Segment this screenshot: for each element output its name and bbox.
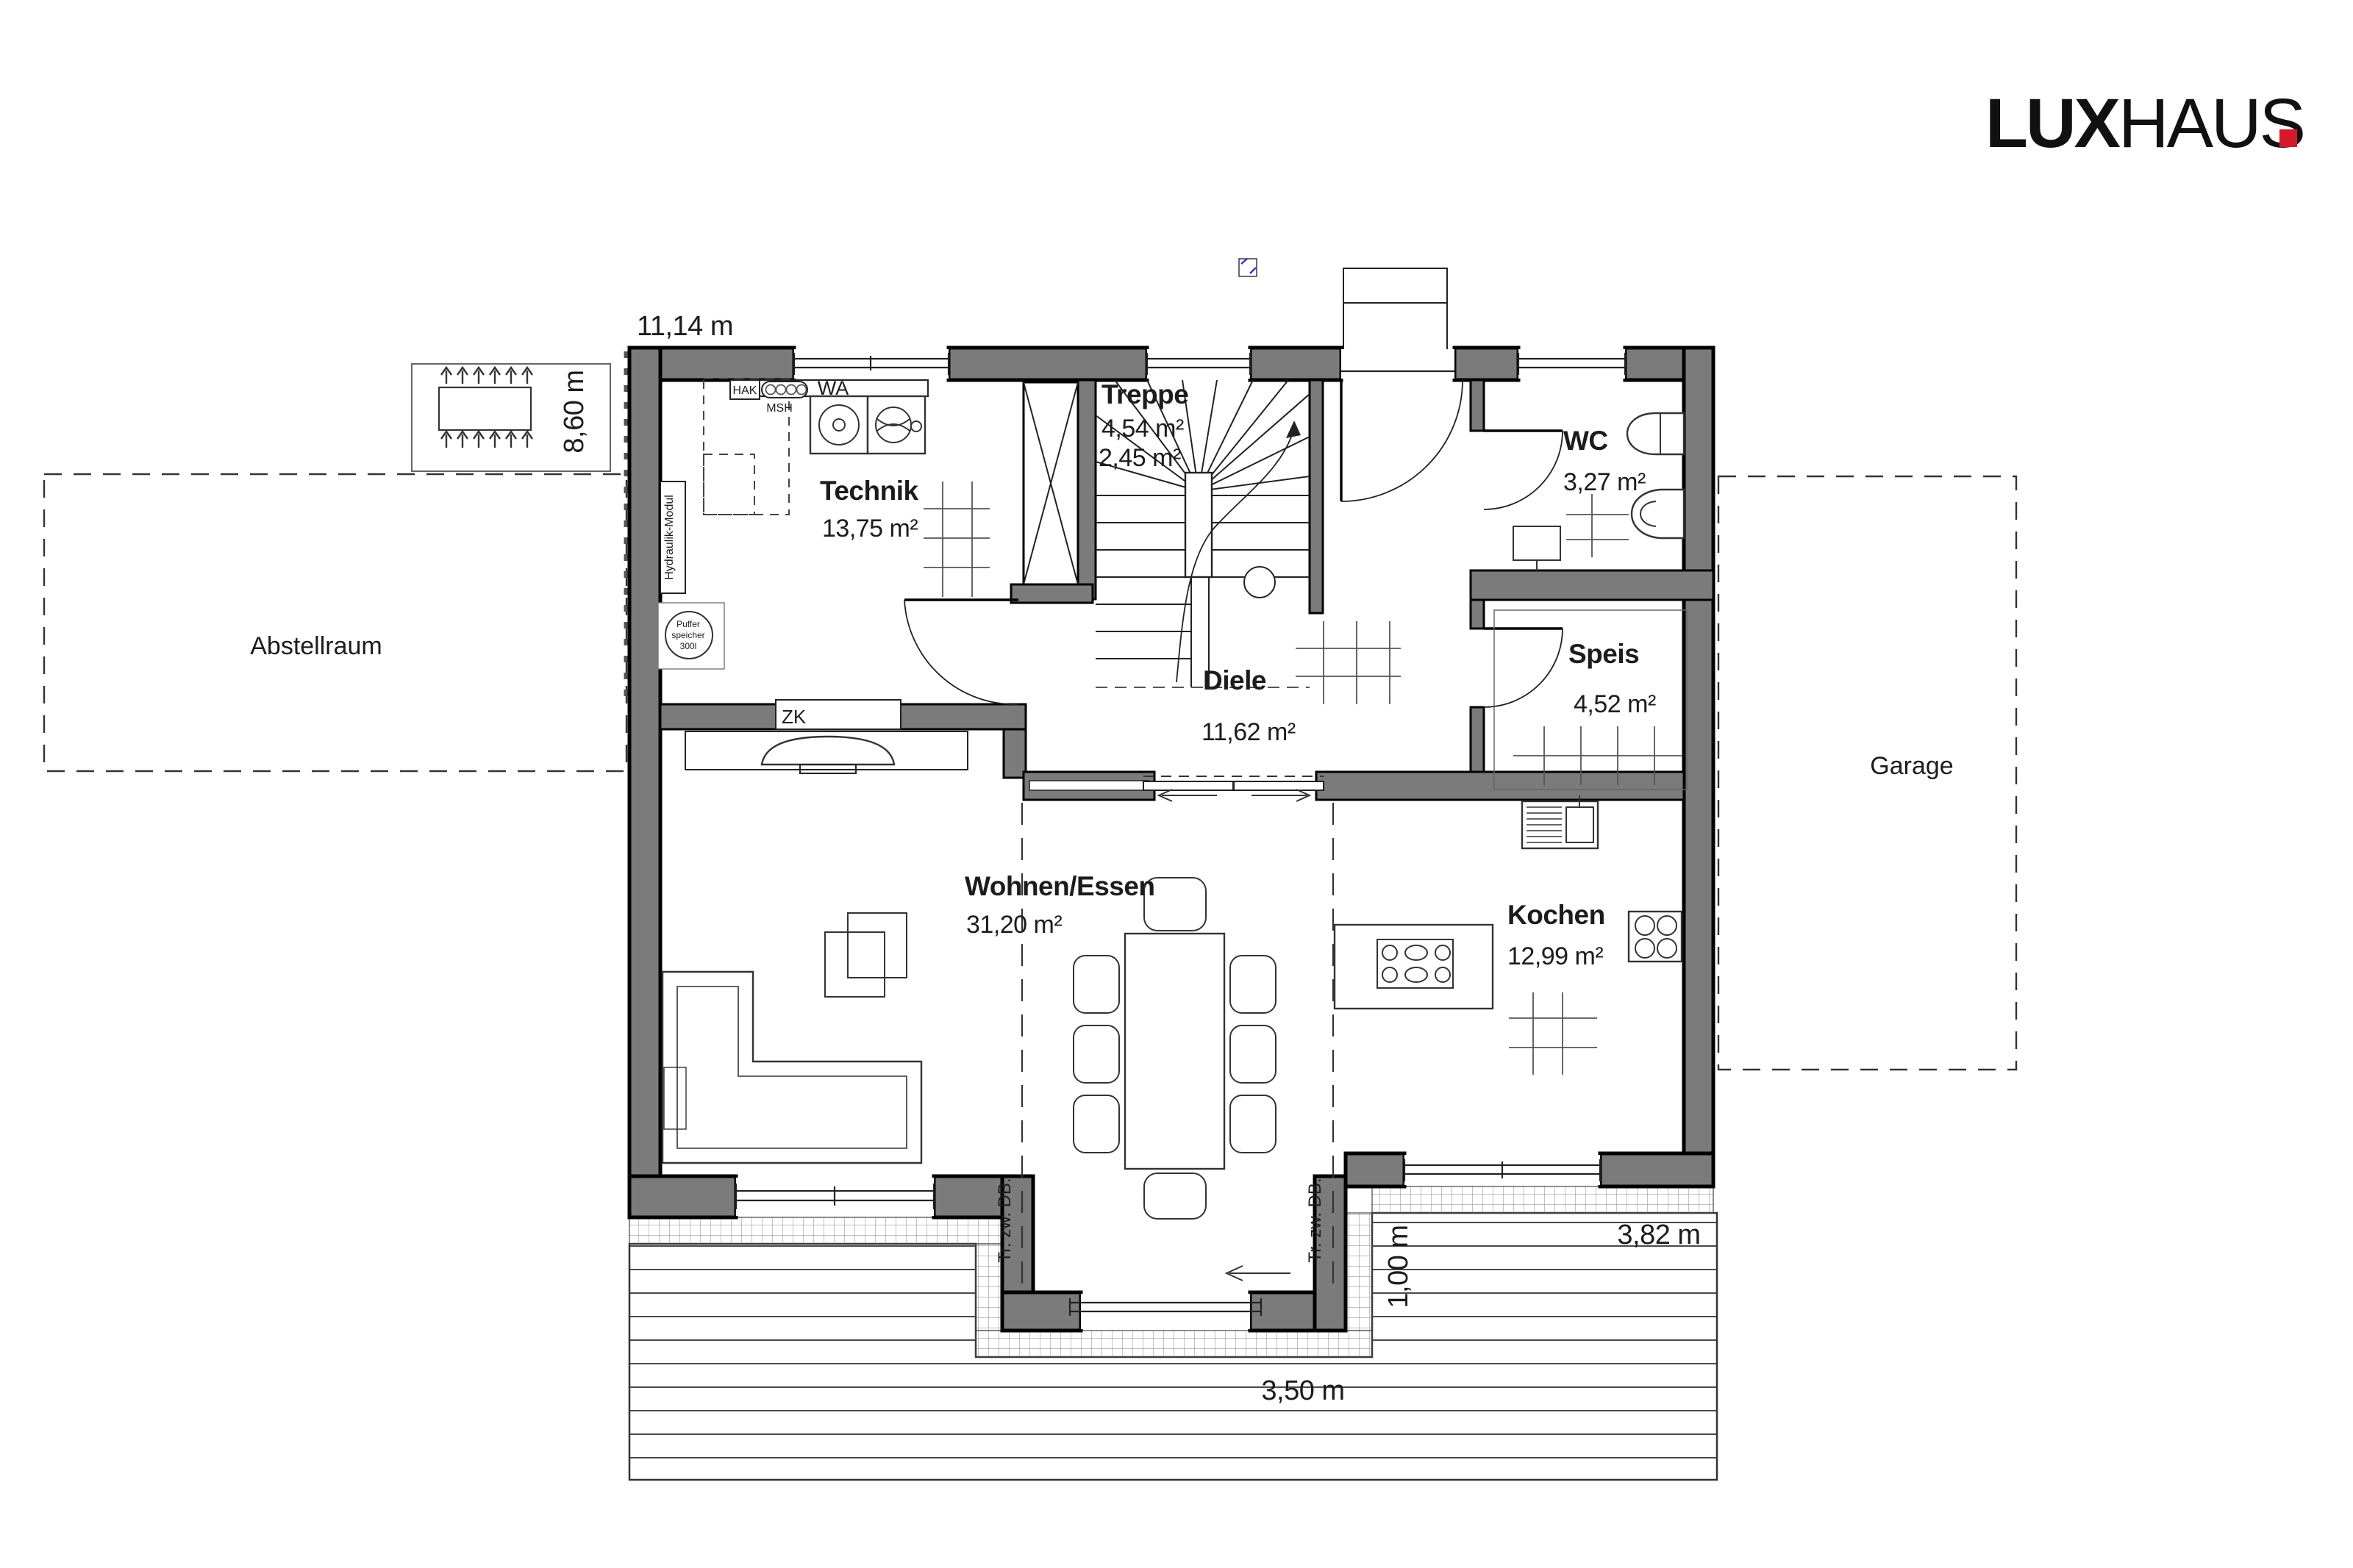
window-wc — [1518, 349, 1625, 379]
label-zk: ZK — [782, 706, 807, 728]
entrance-opening — [1341, 349, 1454, 379]
kitchen-fixtures — [1335, 795, 1682, 1075]
washing-machine-icon — [810, 396, 868, 454]
room-area2-treppe: 2,45 m² — [1099, 444, 1181, 472]
room-label-speis: Speis — [1568, 639, 1639, 669]
entrance-door — [1341, 380, 1463, 501]
walk-line-arrow-icon — [1286, 420, 1301, 438]
meter-strip — [762, 382, 807, 398]
wc-door — [1484, 431, 1563, 509]
garage-outline — [1718, 476, 2016, 1070]
dim-width-top: 11,14 m — [637, 311, 733, 342]
window-kochen-south — [1404, 1155, 1600, 1185]
room-label-kochen: Kochen — [1507, 900, 1605, 930]
room-label-technik: Technik — [820, 476, 918, 506]
dryer-icon — [868, 396, 925, 454]
sink-icon — [1522, 795, 1598, 848]
abstellraum-outline — [44, 474, 626, 771]
label-wa: WA — [818, 377, 849, 399]
speis-door — [1484, 629, 1563, 707]
room-area-technik: 13,75 m² — [822, 515, 918, 543]
reference-square-icon — [1239, 259, 1257, 276]
label-puffer-1: Puffer — [676, 619, 700, 629]
duct-shaft — [1024, 382, 1078, 584]
room-label-diele: Diele — [1203, 665, 1266, 695]
dim-bay-width: 3,50 m — [1261, 1375, 1344, 1406]
label-hydraulik-modul: Hydraulik-Modul — [663, 495, 676, 580]
logo-lux: LUXHAUS — [1985, 85, 2304, 162]
entrance-canopy — [1343, 268, 1447, 351]
window-treppe — [1147, 349, 1250, 379]
wc-cabinet — [1513, 526, 1560, 560]
dim-terrace-offset: 1,00 m — [1383, 1225, 1414, 1308]
label-beam-right: Tr. zw. DB. — [1305, 1178, 1325, 1262]
room-area-kochen: 12,99 m² — [1507, 942, 1603, 970]
label-puffer-3: 300l — [680, 641, 697, 651]
label-beam-left: Tr. zw. DB. — [995, 1178, 1015, 1262]
label-garage: Garage — [1870, 752, 1953, 780]
window-wohnen-south — [736, 1178, 934, 1216]
sideboard-tv — [685, 731, 968, 773]
coffee-table — [848, 913, 907, 978]
label-puffer-2: speicher — [671, 630, 704, 640]
floor-plan-drawing: Technik 13,75 m² Treppe 4,54 m² 2,45 m² … — [0, 0, 2353, 1568]
dining-set — [1074, 878, 1276, 1219]
room-label-wohnen: Wohnen/Essen — [965, 871, 1155, 901]
hob-icon — [1629, 912, 1682, 962]
floor-plan-page: Technik 13,75 m² Treppe 4,54 m² 2,45 m² … — [0, 0, 2353, 1568]
technik-equipment — [658, 379, 990, 729]
label-msh: MSH — [766, 402, 793, 415]
living-furniture — [663, 731, 1276, 1219]
wc-shelf-symbol — [1566, 494, 1629, 557]
sofa — [663, 972, 921, 1163]
washbasin-icon — [1627, 413, 1684, 454]
dim-terrace-right: 3,82 m — [1617, 1220, 1700, 1250]
room-label-treppe: Treppe — [1101, 379, 1188, 409]
slide-direction-icon — [1227, 1266, 1290, 1281]
luxhaus-logo: LUXHAUS — [1985, 85, 2304, 162]
kitchen-shelf-symbol — [1509, 992, 1597, 1075]
pocket-door-slot — [1029, 781, 1149, 790]
window-technik — [794, 349, 949, 379]
kitchen-island — [1335, 925, 1493, 1009]
diele-sliding-door — [1143, 776, 1324, 801]
room-label-wc: WC — [1563, 426, 1608, 456]
room-area-speis: 4,52 m² — [1574, 690, 1656, 718]
label-abstellraum: Abstellraum — [250, 632, 382, 660]
technik-door — [904, 600, 1018, 704]
dim-depth-left: 8,60 m — [559, 370, 590, 453]
wardrobe-symbol — [1296, 621, 1401, 704]
room-area-wohnen: 31,20 m² — [966, 911, 1062, 939]
technik-shelf-symbol — [924, 482, 990, 597]
room-area1-treppe: 4,54 m² — [1101, 415, 1184, 443]
logo-red-dot-icon — [2279, 129, 2297, 147]
toilet-icon — [1632, 490, 1684, 538]
room-area-wc: 3,27 m² — [1563, 468, 1646, 496]
room-area-diele: 11,62 m² — [1202, 718, 1296, 746]
label-hak: HAK — [733, 384, 757, 397]
coffee-table — [825, 932, 885, 997]
